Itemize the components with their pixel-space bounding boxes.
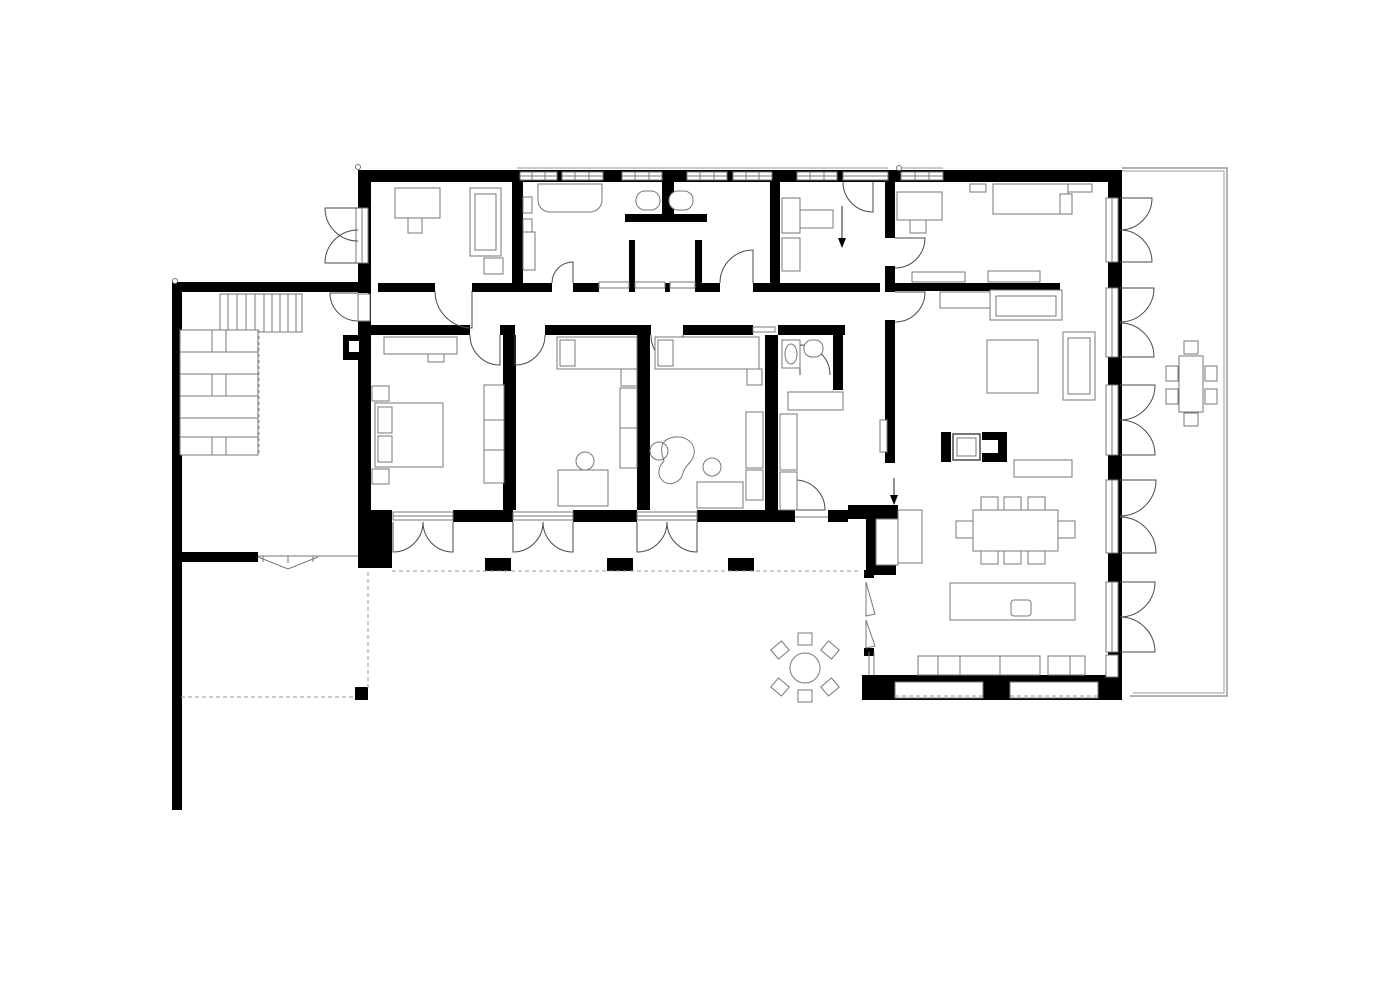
- door-bed1-arc: [470, 335, 500, 365]
- wc-slider-1: [599, 282, 629, 288]
- terrace-chair-n: [798, 633, 812, 645]
- wall-room1-east: [512, 182, 523, 283]
- furn-wash-counter: [538, 184, 602, 212]
- terrace-chair-ne: [821, 641, 839, 659]
- door-porch3-leaf1: [637, 522, 667, 552]
- wall-annex-top: [172, 282, 358, 292]
- door-annex-leaf: [358, 294, 370, 321]
- door-east4-leaf1: [1120, 480, 1156, 516]
- wall-hall-west: [770, 182, 780, 283]
- furn-study-desk: [897, 192, 942, 220]
- furn-dining-table: [973, 510, 1058, 551]
- furn-bed2-chair: [576, 452, 594, 470]
- wall-spineA-2: [472, 283, 552, 292]
- wall-spineA-1: [378, 283, 435, 292]
- wall-spineA-3: [573, 283, 599, 292]
- furn-kitchen-sink: [1011, 600, 1031, 616]
- porch-column-1: [485, 558, 511, 571]
- wall-porch-2: [573, 510, 637, 522]
- wall-vestibule-left: [866, 505, 876, 575]
- wall-bath-east: [833, 325, 843, 390]
- marker-circle-nw: [356, 165, 361, 170]
- furn-bed3-shelf2: [746, 470, 763, 500]
- wall-annex-south: [172, 552, 258, 562]
- furn-dining-chair-t1: [981, 497, 998, 510]
- column-notch-inner: [349, 341, 359, 352]
- door-east5-leaf1: [1120, 582, 1155, 617]
- door-east3-leaf2: [1120, 420, 1155, 455]
- wall-porch-sw-corner: [358, 510, 392, 568]
- furn-cabinet-vest: [523, 232, 535, 270]
- furn-kitchen-counter-3: [960, 656, 1000, 675]
- furn-bed1-dresser-knob: [428, 354, 444, 362]
- furn-stove-block: [941, 432, 951, 462]
- furn-bed3-pillow: [658, 340, 673, 366]
- wall-wc-stub1: [629, 240, 635, 284]
- furn-dining-chair-b1: [981, 551, 998, 564]
- furn-hall-cabinet-1: [782, 198, 800, 233]
- furn-bed3-chair: [703, 458, 721, 476]
- door-east1-leaf2: [1120, 230, 1152, 262]
- furn-shelf-room1-a: [523, 197, 532, 213]
- wall-bed3-hall: [765, 335, 778, 510]
- furn-desk-room1: [395, 188, 440, 218]
- furn-chair-room1: [408, 218, 422, 233]
- furn-divider-shelf2: [988, 271, 1040, 282]
- furn-radiator: [880, 420, 887, 452]
- furn-study-chair: [910, 220, 926, 233]
- closet-row-1: [180, 330, 258, 352]
- wall-spineB-1: [367, 325, 470, 335]
- wall-spineA-p2: [665, 283, 670, 292]
- wall-spineB-2: [545, 325, 651, 335]
- furn-bath-toilet: [804, 340, 823, 357]
- furn-bed3-ball: [650, 442, 668, 460]
- closet-row-6: [180, 437, 258, 455]
- furn-bed3-desk: [697, 482, 743, 508]
- door-porch2-leaf1: [513, 522, 543, 552]
- window-east-6-fixed: [1106, 655, 1118, 677]
- terrace-east-chair-l1: [1166, 366, 1178, 381]
- wall-bed1-bed2: [503, 335, 516, 510]
- door-bed2-arc: [515, 335, 545, 365]
- furn-dining-chair-b3: [1028, 551, 1045, 564]
- door-porch2-leaf2: [543, 522, 573, 552]
- door-annex-arc: [330, 293, 358, 321]
- wall-bed2-bed3: [637, 335, 650, 510]
- hall-opening-sill: [753, 327, 775, 332]
- door-living-north-arc: [895, 238, 925, 268]
- furn-stove-wood: [982, 432, 1007, 462]
- marker-circle-n: [897, 166, 902, 171]
- furn-kitchen-counter-1: [918, 656, 938, 675]
- terrace-east-chair-t: [1184, 341, 1198, 354]
- door-wc-arc: [552, 262, 573, 283]
- closet-row-3: [180, 374, 258, 396]
- furn-dining-chair-l: [956, 521, 973, 538]
- terrace-chair-nw: [771, 641, 789, 659]
- door-entrance-arc: [843, 182, 873, 212]
- terrace-east-chair-l2: [1166, 389, 1178, 404]
- wall-spineB-pier: [500, 325, 515, 335]
- wall-spineB-3: [683, 325, 753, 335]
- furn-study-sidetable: [1060, 194, 1072, 214]
- furn-bed1-pillow1: [378, 407, 392, 433]
- wc-slider-2: [635, 282, 665, 288]
- fence-screen-tri1: [866, 582, 875, 616]
- stairs-outline: [220, 294, 302, 332]
- furn-bed1-nightstand2: [372, 469, 389, 484]
- furn-kitchen-tall-cabinet: [898, 510, 922, 563]
- door-porch1-leaf2: [423, 522, 453, 552]
- furn-bed2-desk: [558, 470, 608, 506]
- furn-study-nightstand2: [1068, 184, 1092, 192]
- door-east5-leaf2: [1120, 617, 1155, 652]
- door-east1-leaf1: [1120, 198, 1152, 230]
- furn-living-credenza: [940, 292, 990, 308]
- wall-wc-stub2: [695, 240, 702, 284]
- wc-slider-3: [670, 282, 695, 288]
- furn-hall-cabinet-2: [782, 238, 800, 271]
- furn-dining-chair-t3: [1028, 497, 1045, 510]
- wall-porch-1: [453, 510, 513, 522]
- furn-kitchen-counter-2: [938, 656, 960, 675]
- wall-porch-4: [828, 510, 848, 522]
- furn-study-nightstand1: [970, 184, 986, 192]
- terrace-east-chair-r2: [1205, 389, 1217, 404]
- closet-row-2: [180, 352, 258, 374]
- furn-study-bed: [993, 184, 1068, 214]
- marker-square-dashed-corner: [355, 687, 368, 700]
- furn-living-sideboard: [1014, 460, 1072, 477]
- door-east4-leaf2: [1120, 517, 1156, 553]
- furn-bed1-pillow2: [378, 436, 392, 462]
- furn-bed3-shelf1: [746, 412, 763, 468]
- door-west-french-leaf2: [325, 230, 358, 263]
- wall-spine-vert-b: [885, 266, 895, 292]
- door-room-right-arc: [720, 250, 753, 283]
- wall-spineA-5: [753, 283, 880, 292]
- terrace-chair-s: [798, 690, 812, 702]
- furn-divider-shelf1: [912, 272, 965, 282]
- wall-spineA-4: [695, 283, 720, 292]
- entrance-arrow-head: [838, 238, 846, 248]
- porch-column-2: [607, 558, 633, 571]
- furn-dining-chair-t2: [1004, 497, 1021, 510]
- fence-screen-tri2: [866, 620, 875, 648]
- terrace-chair-se: [821, 678, 839, 696]
- wall-porch-3: [697, 510, 795, 522]
- furn-kitchen-counter-4: [1000, 656, 1040, 675]
- door-east3-leaf1: [1120, 385, 1155, 420]
- wall-spineA-p1: [629, 283, 635, 292]
- terrace-east-chair-b: [1184, 413, 1198, 426]
- furn-shelf-room1-b: [523, 219, 532, 232]
- terrace-round-table: [790, 653, 820, 683]
- boundary-east-outer: [1122, 168, 1227, 696]
- terrace-chair-sw: [771, 678, 789, 696]
- furn-bed1-wardrobe: [484, 385, 504, 483]
- furn-kitchen-counter-6: [1070, 656, 1085, 675]
- terrace-east-chair-r1: [1205, 366, 1217, 381]
- door-east2-leaf1: [1120, 288, 1154, 322]
- furn-dining-chair-r: [1058, 521, 1075, 538]
- furn-bed2-nightstand: [621, 369, 637, 386]
- porch-column-3: [728, 558, 754, 571]
- furn-living-coffee-table: [987, 340, 1038, 393]
- furn-toilet-left: [636, 191, 660, 210]
- furn-sidetable-room1: [484, 258, 503, 274]
- closet-row-5: [180, 418, 258, 437]
- door-rear-hall-arc: [795, 480, 825, 510]
- furn-rearhall-closet1: [780, 414, 797, 470]
- furn-bed1-nightstand1: [372, 386, 389, 401]
- terrace-east-table: [1179, 356, 1203, 412]
- door-east2-leaf2: [1120, 323, 1154, 357]
- marker-circle-annex: [173, 279, 178, 284]
- vestibule-niche: [876, 519, 898, 565]
- furn-bed1-dresser: [384, 337, 457, 354]
- door-porch3-leaf2: [667, 522, 697, 552]
- furn-kitchen-counter-5: [1048, 656, 1070, 675]
- door-living-south-arc: [895, 292, 925, 322]
- door-porch1-leaf1: [393, 522, 423, 552]
- furn-toilet-right: [669, 191, 693, 210]
- furn-bed2-pillow: [560, 340, 575, 366]
- fence-cap-top: [864, 570, 874, 578]
- door-corridor-arc: [435, 291, 472, 328]
- furn-rearhall-shelf: [788, 392, 843, 410]
- boundary-east-inner: [1122, 171, 1224, 693]
- furn-hall-desk: [800, 210, 833, 228]
- furn-dining-chair-b2: [1004, 551, 1021, 564]
- floor-plan-page: [0, 0, 1400, 990]
- wall-wc-bar: [625, 214, 707, 222]
- closet-row-4: [180, 396, 258, 418]
- furn-bed3-nightstand: [747, 369, 762, 385]
- floor-plan-canvas: [0, 0, 1400, 990]
- furn-rearhall-closet2: [780, 472, 797, 510]
- kitchen-arrow-head: [890, 495, 898, 505]
- door-west-french-leaf1: [325, 208, 358, 241]
